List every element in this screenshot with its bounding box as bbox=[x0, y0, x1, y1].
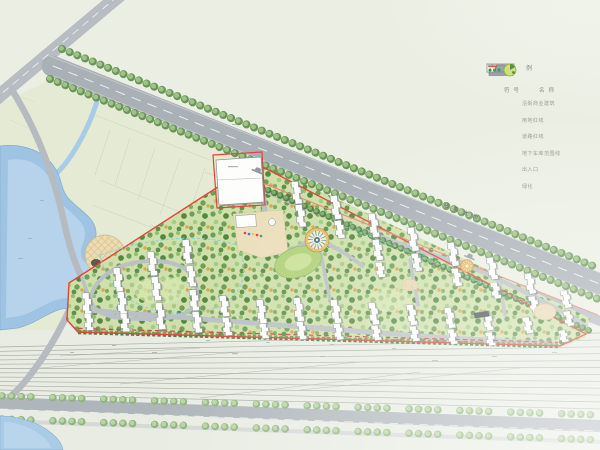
legend-header: 符号 名称 bbox=[504, 86, 596, 94]
legend-col-name: 名称 bbox=[539, 86, 558, 94]
legend-item-entrance: 出入口 bbox=[486, 166, 596, 173]
legend-col-symbol: 符号 bbox=[504, 86, 523, 94]
site-plan-screenshot: 站前大街 图例 符号 名称 沿街商业建筑 用地红线 道路红线 地下车库范围线 出… bbox=[0, 0, 600, 450]
legend: 图例 符号 名称 沿街商业建筑 用地红线 道路红线 地下车库范围线 出入口 bbox=[486, 63, 596, 199]
legend-item-road-redline: 道路红线 bbox=[486, 133, 596, 140]
legend-item-garage-line: 地下车库范围线 bbox=[486, 150, 596, 157]
legend-title: 图例 bbox=[507, 63, 596, 72]
legend-item-greenery: 绿化 bbox=[486, 183, 596, 190]
legend-item-site-redline: 用地红线 bbox=[486, 117, 596, 124]
legend-item-building: 沿街商业建筑 bbox=[486, 100, 596, 107]
